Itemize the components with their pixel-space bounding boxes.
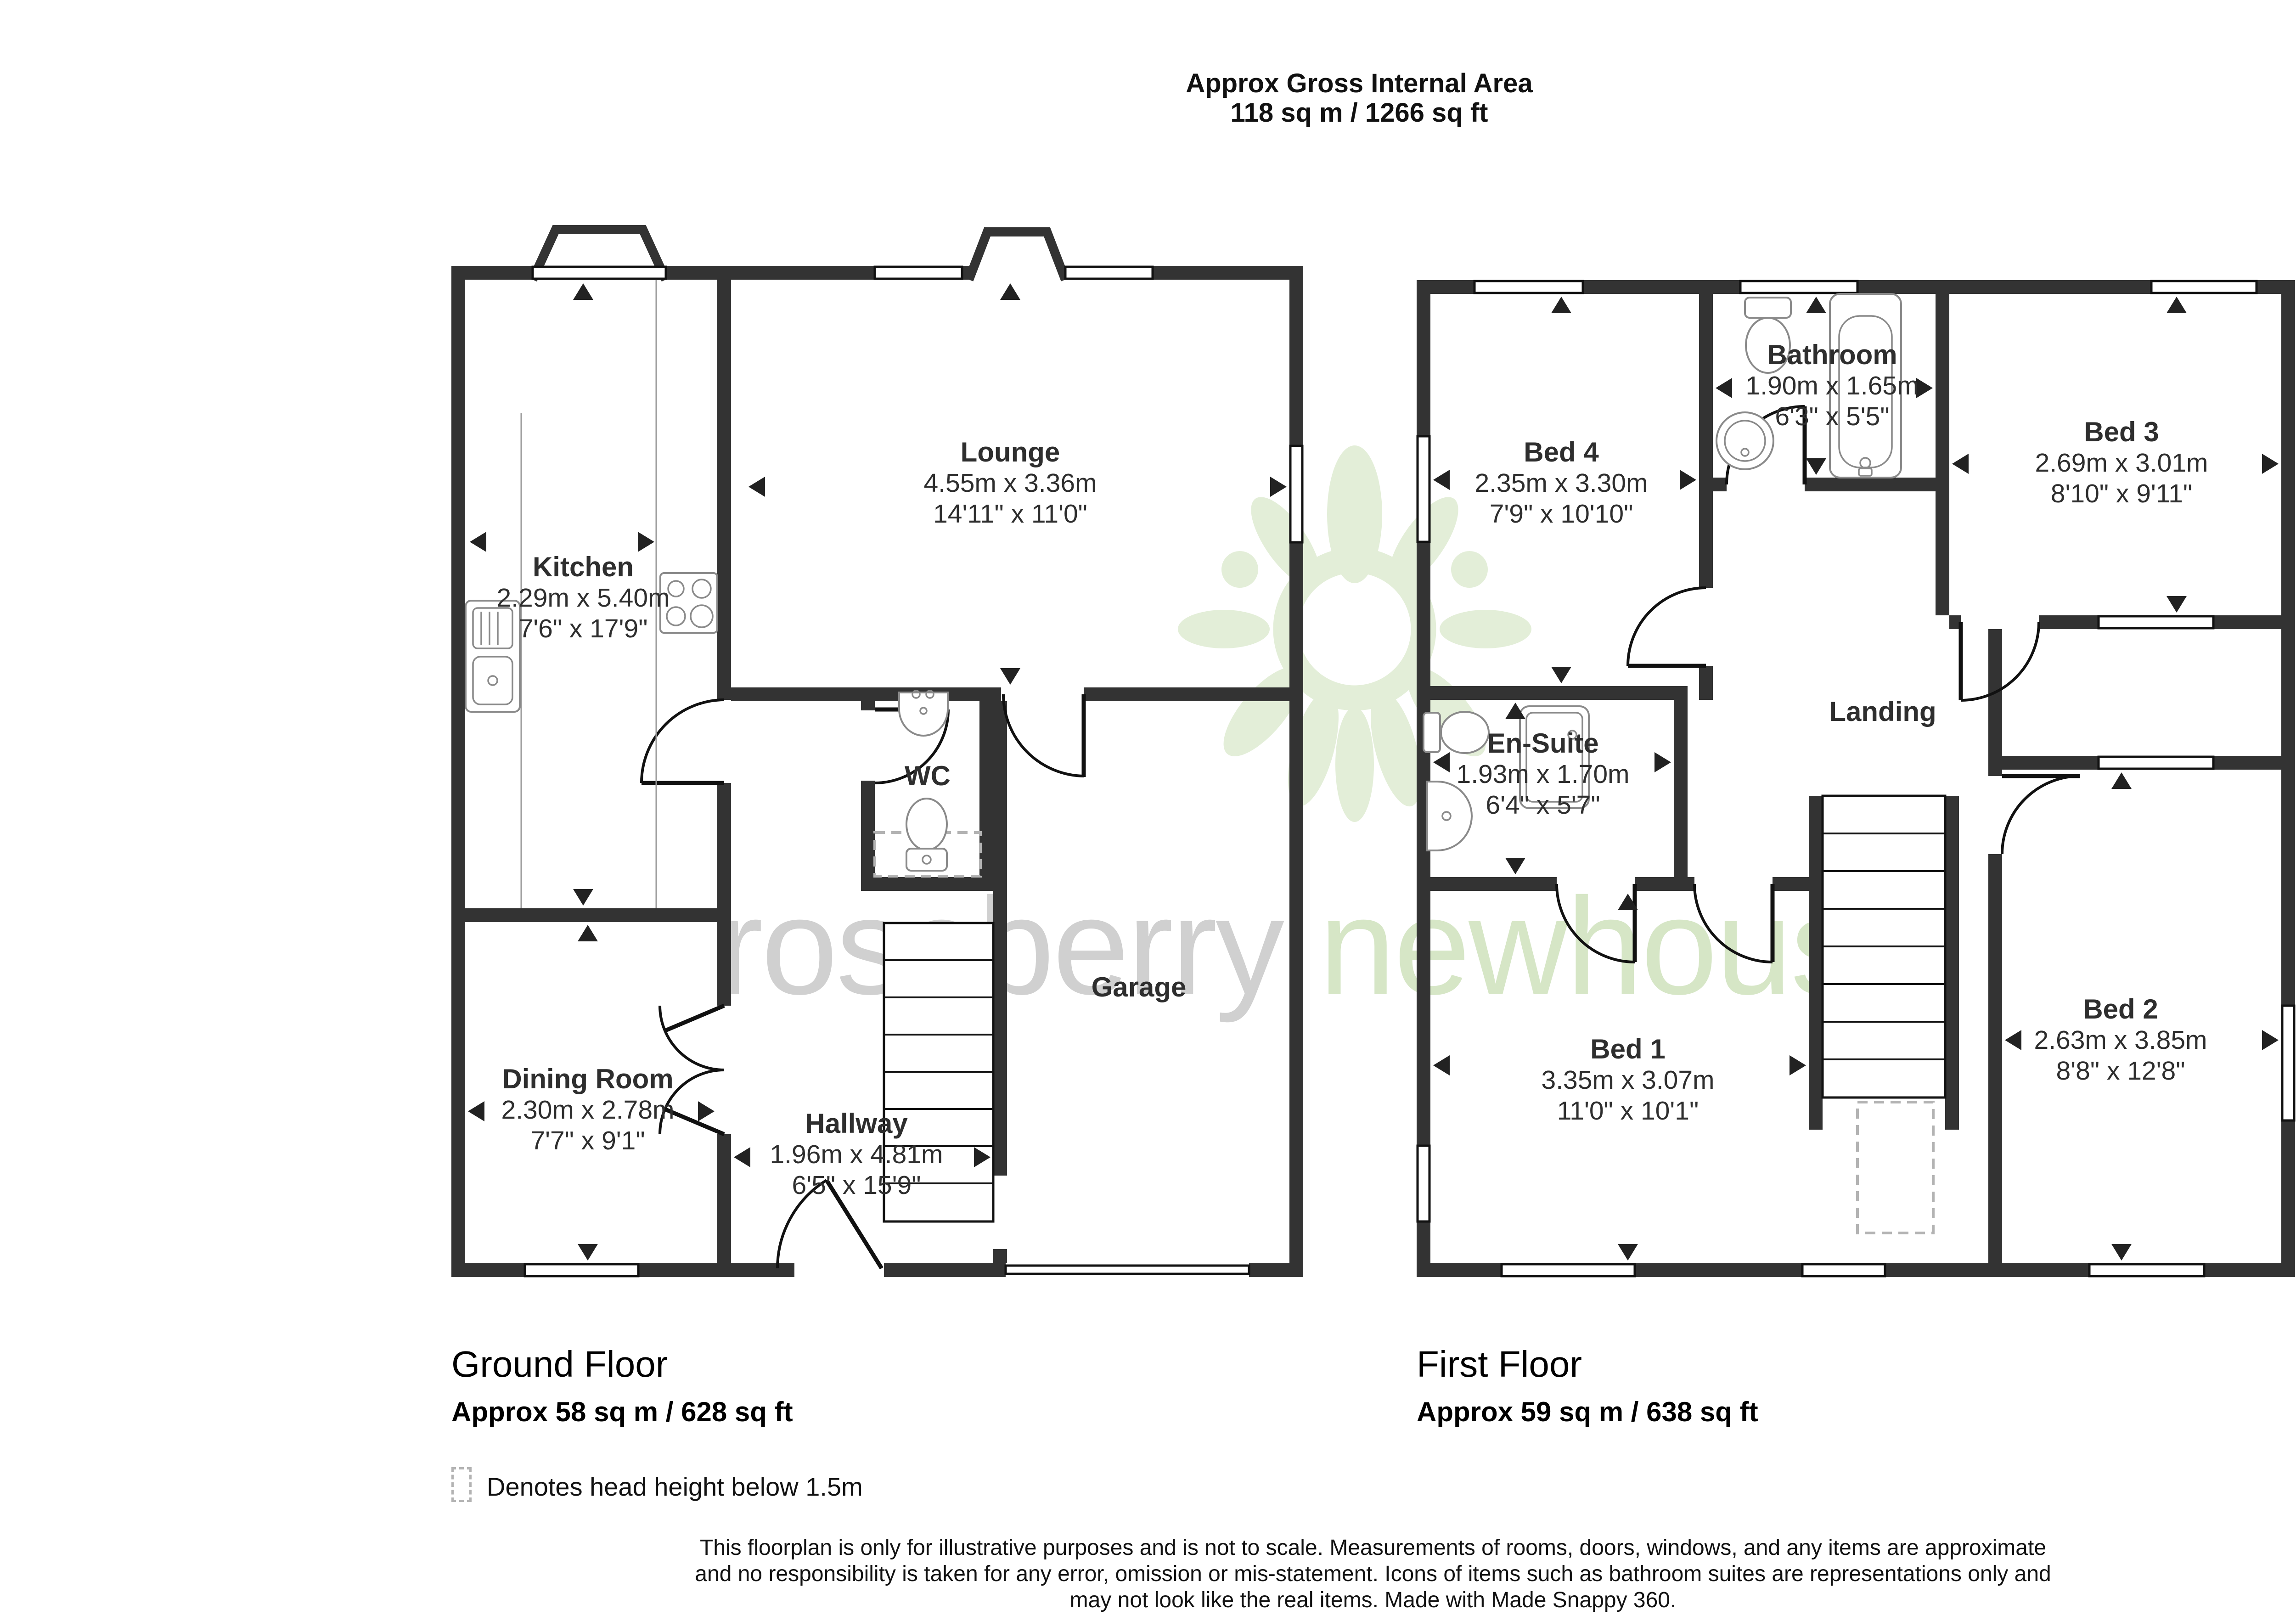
room-name: Dining Room: [501, 1063, 674, 1095]
room-metric: 2.35m x 3.30m: [1474, 468, 1648, 499]
floorplan-page: roseberry newhouse: [0, 0, 2296, 1621]
room-metric: 2.30m x 2.78m: [501, 1095, 674, 1126]
room-imperial: 7'6" x 17'9": [496, 614, 670, 644]
room-name: Kitchen: [496, 551, 670, 583]
room-imperial: 7'9" x 10'10": [1474, 499, 1648, 529]
room-imperial: 6'3" x 5'5": [1745, 401, 1919, 432]
room-label-kitchen: Kitchen 2.29m x 5.40m 7'6" x 17'9": [496, 551, 670, 644]
room-imperial: 8'8" x 12'8": [2034, 1056, 2207, 1086]
wc-sink-icon: [899, 691, 948, 736]
room-name: WC: [905, 760, 951, 792]
room-name: Bed 4: [1474, 436, 1648, 468]
room-name: Garage: [1092, 971, 1187, 1003]
room-imperial: 7'7" x 9'1": [501, 1126, 674, 1156]
ground-floor-area: Approx 58 sq m / 628 sq ft: [451, 1396, 793, 1428]
room-name: Landing: [1829, 696, 1936, 727]
disclaimer-line1: This floorplan is only for illustrative …: [700, 1535, 2046, 1561]
disclaimer-line3: may not look like the real items. Made w…: [1070, 1587, 1677, 1613]
room-label-landing: Landing: [1829, 696, 1936, 727]
room-name: Bathroom: [1745, 339, 1919, 371]
room-imperial: 8'10" x 9'11": [2035, 478, 2208, 509]
first-floor-stairs: [1823, 796, 1945, 1098]
page-title-line2: 118 sq m / 1266 sq ft: [1231, 98, 1488, 128]
room-name: Hallway: [770, 1108, 943, 1139]
room-label-bed2: Bed 2 2.63m x 3.85m 8'8" x 12'8": [2034, 993, 2207, 1086]
room-label-bathroom: Bathroom 1.90m x 1.65m 6'3" x 5'5": [1745, 339, 1919, 432]
room-label-hallway: Hallway 1.96m x 4.81m 6'5" x 15'9": [770, 1108, 943, 1201]
room-label-lounge: Lounge 4.55m x 3.36m 14'11" x 11'0": [923, 436, 1097, 529]
room-label-garage: Garage: [1092, 971, 1187, 1003]
room-label-dining-room: Dining Room 2.30m x 2.78m 7'7" x 9'1": [501, 1063, 674, 1156]
wc-toilet-icon: [906, 799, 947, 871]
room-label-wc: WC: [905, 760, 951, 792]
room-name: En-Suite: [1456, 727, 1629, 759]
head-height-area-stairs: [1857, 1102, 1933, 1233]
room-metric: 4.55m x 3.36m: [923, 468, 1097, 499]
first-floor-area: Approx 59 sq m / 638 sq ft: [1417, 1396, 1758, 1428]
garage-door: [1006, 1266, 1249, 1274]
first-floor-label: First Floor: [1417, 1343, 1582, 1385]
room-label-bed4: Bed 4 2.35m x 3.30m 7'9" x 10'10": [1474, 436, 1648, 529]
room-label-bed1: Bed 1 3.35m x 3.07m 11'0" x 10'1": [1541, 1033, 1714, 1126]
lounge-bay-window: [969, 232, 1065, 280]
room-metric: 1.96m x 4.81m: [770, 1139, 943, 1170]
room-imperial: 6'4" x 5'7": [1456, 790, 1629, 821]
disclaimer-line2: and no responsibility is taken for any e…: [695, 1561, 2051, 1587]
room-metric: 3.35m x 3.07m: [1541, 1065, 1714, 1096]
room-name: Bed 3: [2035, 416, 2208, 448]
room-imperial: 6'5" x 15'9": [770, 1170, 943, 1201]
room-name: Bed 2: [2034, 993, 2207, 1025]
head-height-legend-label: Denotes head height below 1.5m: [487, 1472, 863, 1502]
room-metric: 2.29m x 5.40m: [496, 583, 670, 614]
head-height-legend-icon: [451, 1467, 472, 1502]
room-metric: 2.63m x 3.85m: [2034, 1025, 2207, 1056]
room-imperial: 11'0" x 10'1": [1541, 1096, 1714, 1126]
room-name: Bed 1: [1541, 1033, 1714, 1065]
room-metric: 1.90m x 1.65m: [1745, 371, 1919, 401]
room-metric: 2.69m x 3.01m: [2035, 448, 2208, 478]
floorplan-drawing: N E S W: [0, 0, 2296, 1621]
page-title-line1: Approx Gross Internal Area: [1186, 69, 1532, 98]
room-name: Lounge: [923, 436, 1097, 468]
room-metric: 1.93m x 1.70m: [1456, 759, 1629, 790]
room-imperial: 14'11" x 11'0": [923, 499, 1097, 529]
room-label-bed3: Bed 3 2.69m x 3.01m 8'10" x 9'11": [2035, 416, 2208, 509]
room-label-en-suite: En-Suite 1.93m x 1.70m 6'4" x 5'7": [1456, 727, 1629, 821]
ground-floor-label: Ground Floor: [451, 1343, 668, 1385]
